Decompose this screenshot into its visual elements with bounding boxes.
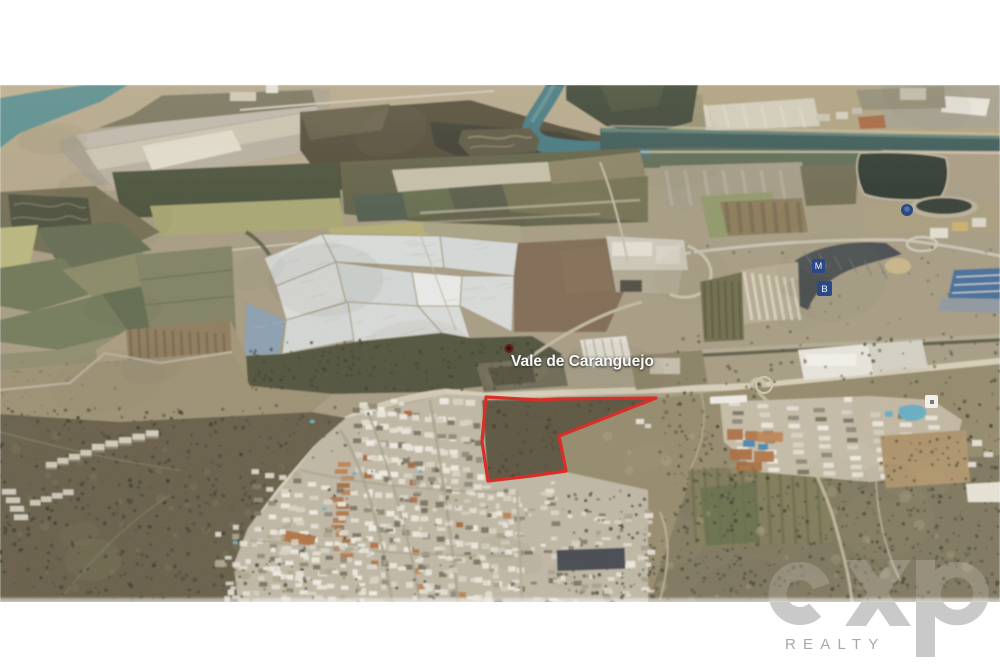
svg-text:REALTY: REALTY xyxy=(785,636,885,653)
